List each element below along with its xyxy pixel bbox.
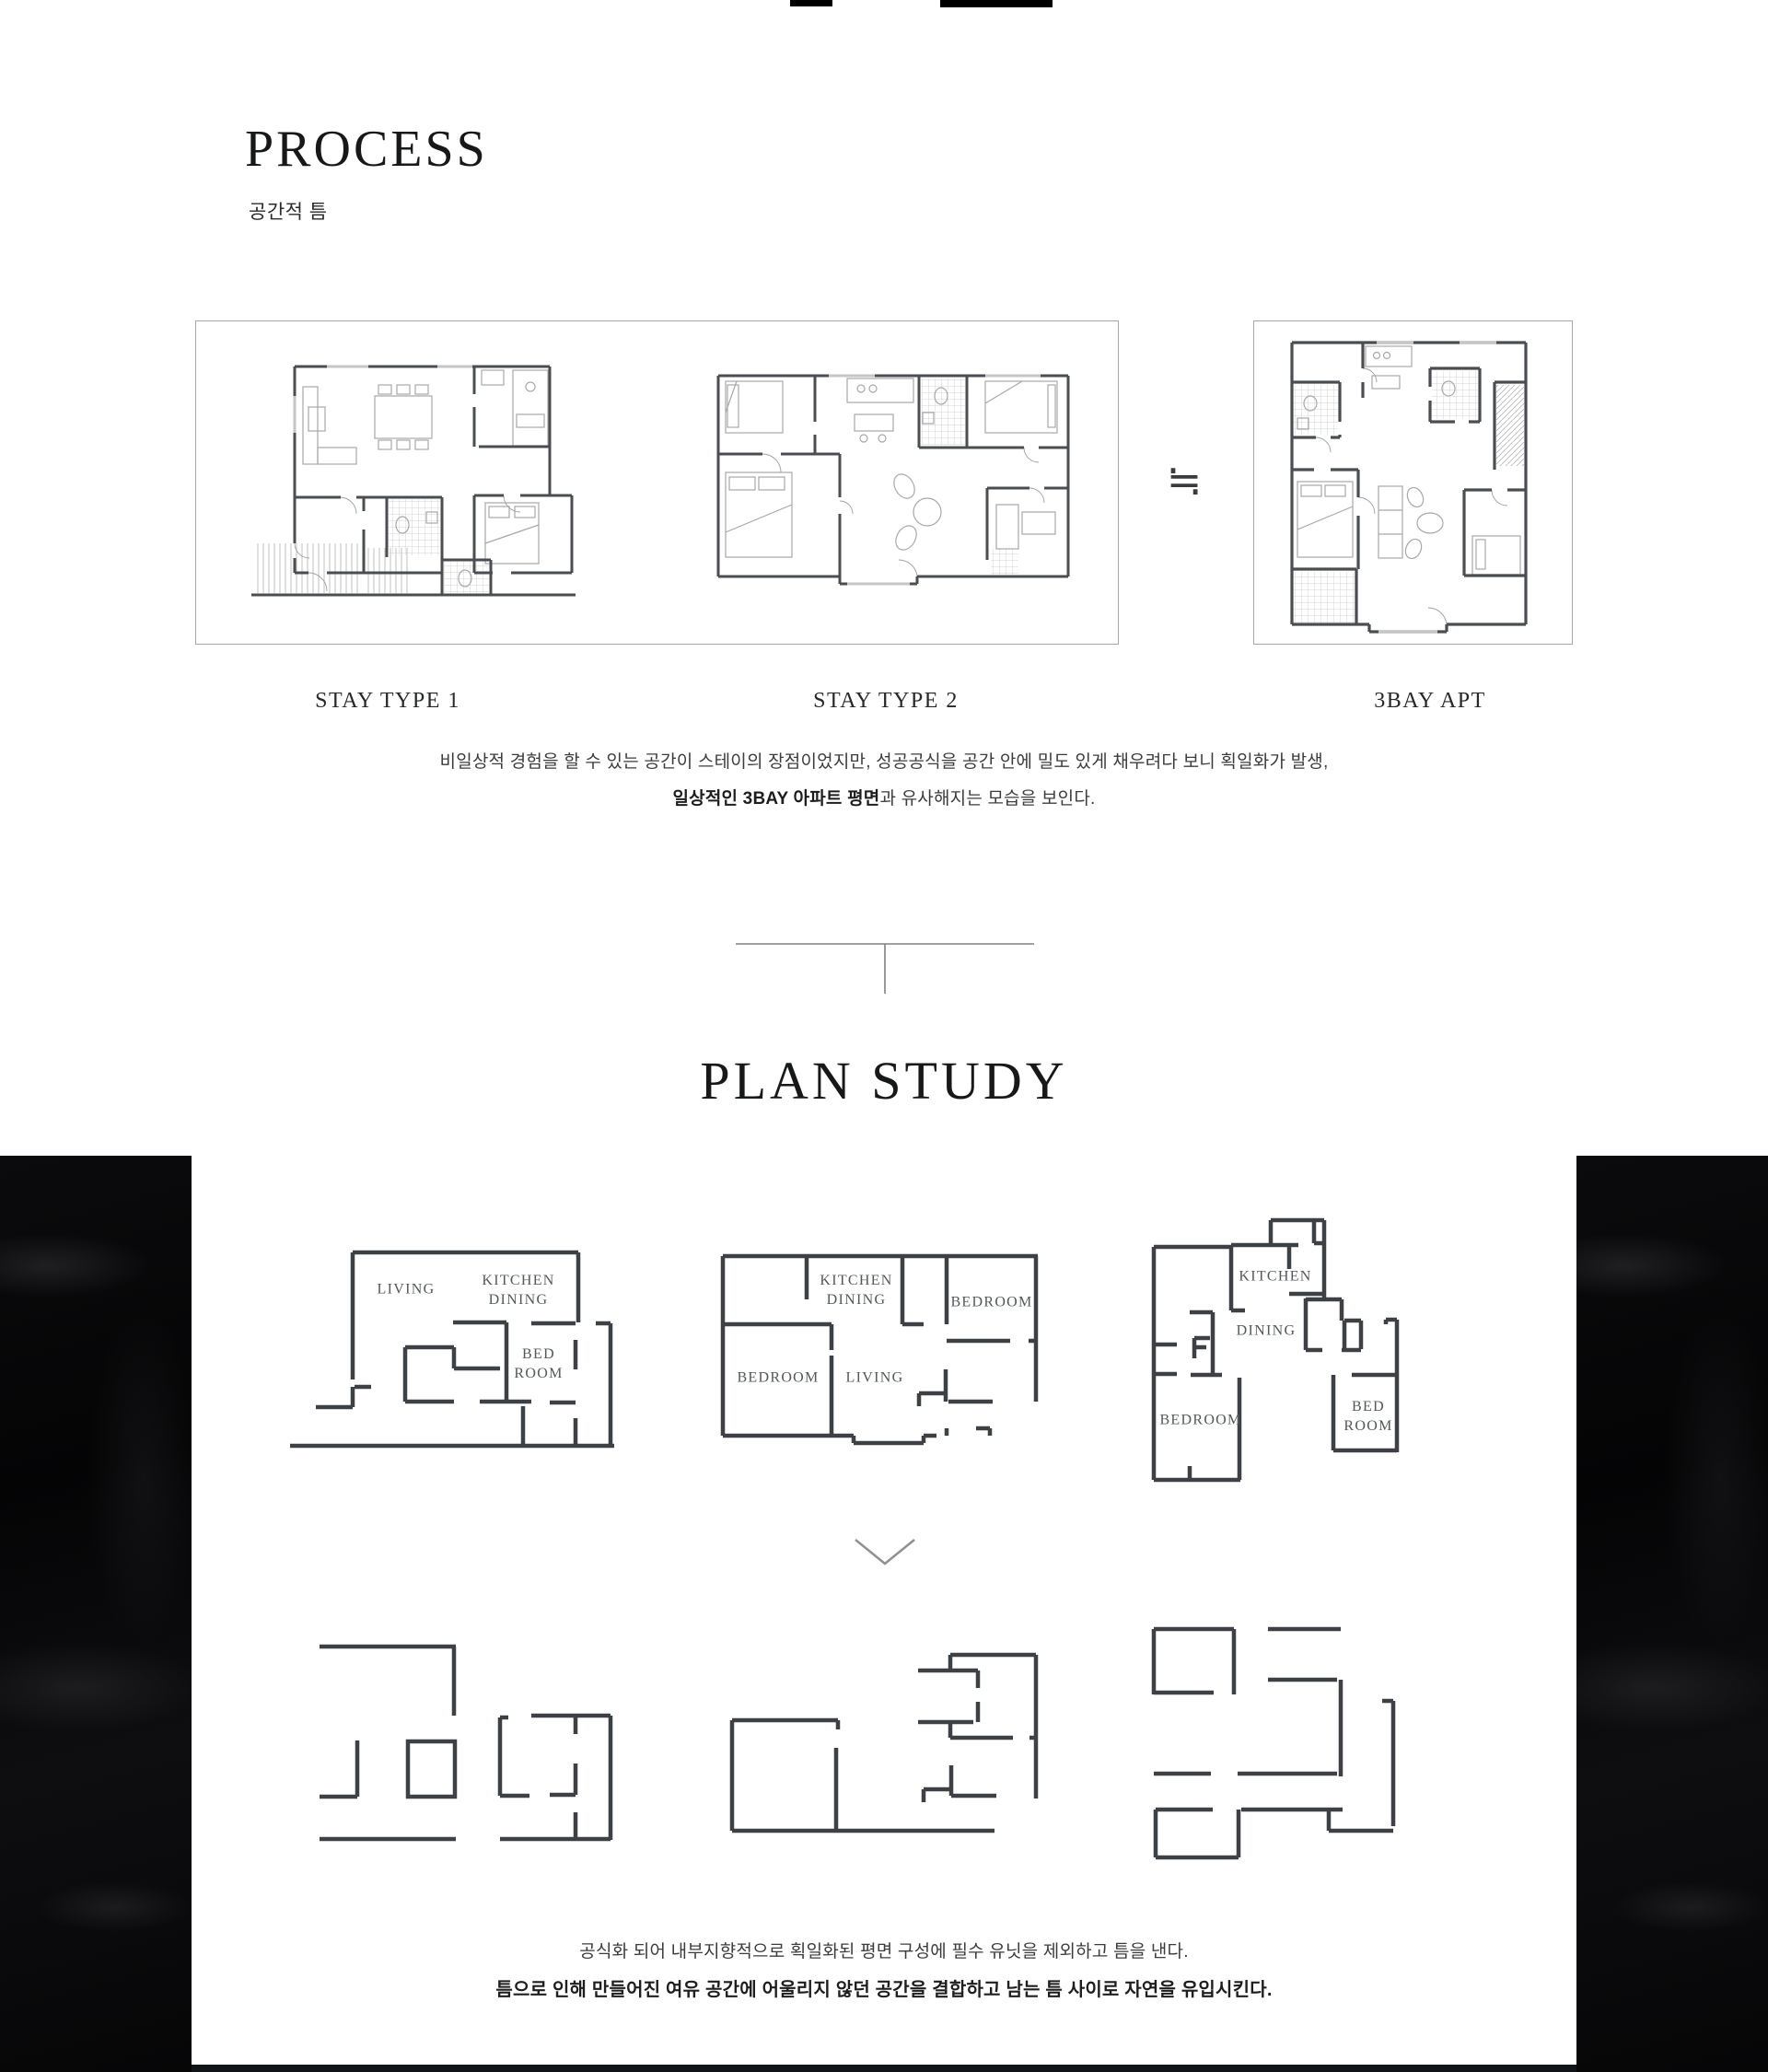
diagram-b-living-label: LIVING — [846, 1369, 904, 1389]
top-black-bar-wide — [940, 0, 1053, 7]
furniture — [726, 378, 1057, 557]
diagram-b-bedroom-right-label: BEDROOM — [950, 1294, 1032, 1313]
fragment-study-1 — [308, 1639, 649, 1851]
diagram-b-kitchen-line: KITCHEN — [820, 1272, 892, 1291]
process-caption-bold: 일상적인 3BAY 아파트 평면 — [672, 789, 879, 809]
furniture — [1297, 346, 1520, 575]
fragment-study-2 — [727, 1648, 1050, 1842]
walls — [290, 1252, 614, 1446]
fragment-study-3 — [1146, 1625, 1413, 1892]
walls — [1154, 1220, 1397, 1480]
stay-type-1-plan-drawing — [244, 359, 631, 603]
diagram-a-bed-line: BED — [514, 1345, 563, 1365]
process-caption-line2: 일상적인 3BAY 아파트 평면과 유사해지는 모습을 보인다. — [0, 785, 1768, 809]
page-title: PROCESS — [245, 120, 488, 179]
plan-label-3bay-apt: 3BAY APT — [1374, 689, 1486, 714]
plan-study-diagram-a — [290, 1243, 622, 1455]
bath-tiles — [253, 499, 489, 593]
plan-label-stay-type-2: STAY TYPE 2 — [813, 689, 959, 714]
stay-type-2-plan-drawing — [709, 367, 1077, 591]
diagram-c-dining-label: DINING — [1237, 1322, 1297, 1342]
diagram-b-bedroom-left-label: BEDROOM — [737, 1369, 819, 1389]
left-texture-band — [0, 1156, 192, 2072]
diagram-c-bedroom-right-label: BED ROOM — [1343, 1398, 1392, 1437]
diagram-c-bedroom-label: BEDROOM — [1159, 1412, 1241, 1431]
plan-label-stay-type-1: STAY TYPE 1 — [315, 689, 460, 714]
bath-tiles — [922, 378, 1018, 575]
page-subtitle: 공간적 틈 — [249, 197, 328, 225]
diagram-c-kitchen-label: KITCHEN — [1239, 1268, 1311, 1287]
walls — [320, 1647, 611, 1840]
process-caption-rest: 과 유사해지는 모습을 보인다. — [879, 789, 1095, 809]
bottom-black-strip — [192, 2065, 1576, 2072]
plan-study-diagram-c — [1137, 1197, 1441, 1501]
diagram-a-dining-line: DINING — [482, 1291, 554, 1310]
diagram-a-living-label: LIVING — [378, 1281, 436, 1300]
top-black-bar-small — [790, 0, 832, 6]
walls — [1154, 1629, 1393, 1857]
page: PROCESS 공간적 틈 — [0, 0, 1768, 2072]
windows — [295, 367, 472, 433]
diagram-a-room-line: ROOM — [514, 1365, 563, 1384]
3bay-apt-plan-drawing — [1275, 332, 1542, 635]
approx-equal-symbol: ≒ — [1158, 455, 1210, 505]
diagram-c-bed-line: BED — [1343, 1398, 1392, 1417]
chevron-down-icon — [852, 1536, 918, 1569]
diagram-b-dining-line: DINING — [820, 1291, 892, 1310]
right-texture-band — [1576, 1156, 1768, 2072]
process-caption-line1: 비일상적 경험을 할 수 있는 공간이 스테이의 장점이었지만, 성공공식을 공… — [0, 748, 1768, 773]
diagram-a-bedroom-label: BED ROOM — [514, 1345, 563, 1384]
diagram-b-kitchen-dining-label: KITCHEN DINING — [820, 1272, 892, 1310]
plan-study-caption-line1: 공식화 되어 내부지향적으로 획일화된 평면 구성에 필수 유닛을 제외하고 틈… — [0, 1938, 1768, 1962]
t-divider-line — [735, 941, 1035, 996]
diagram-c-room-line: ROOM — [1343, 1417, 1392, 1437]
diagram-a-kitchen-dining-label: KITCHEN DINING — [482, 1272, 554, 1310]
diagram-a-kitchen-line: KITCHEN — [482, 1272, 554, 1291]
plan-study-title: PLAN STUDY — [0, 1050, 1768, 1112]
walls — [732, 1655, 1036, 1831]
plan-study-caption-line2: 틈으로 인해 만들어진 여유 공간에 어울리지 않던 공간을 결합하고 남는 틈… — [0, 1974, 1768, 2001]
